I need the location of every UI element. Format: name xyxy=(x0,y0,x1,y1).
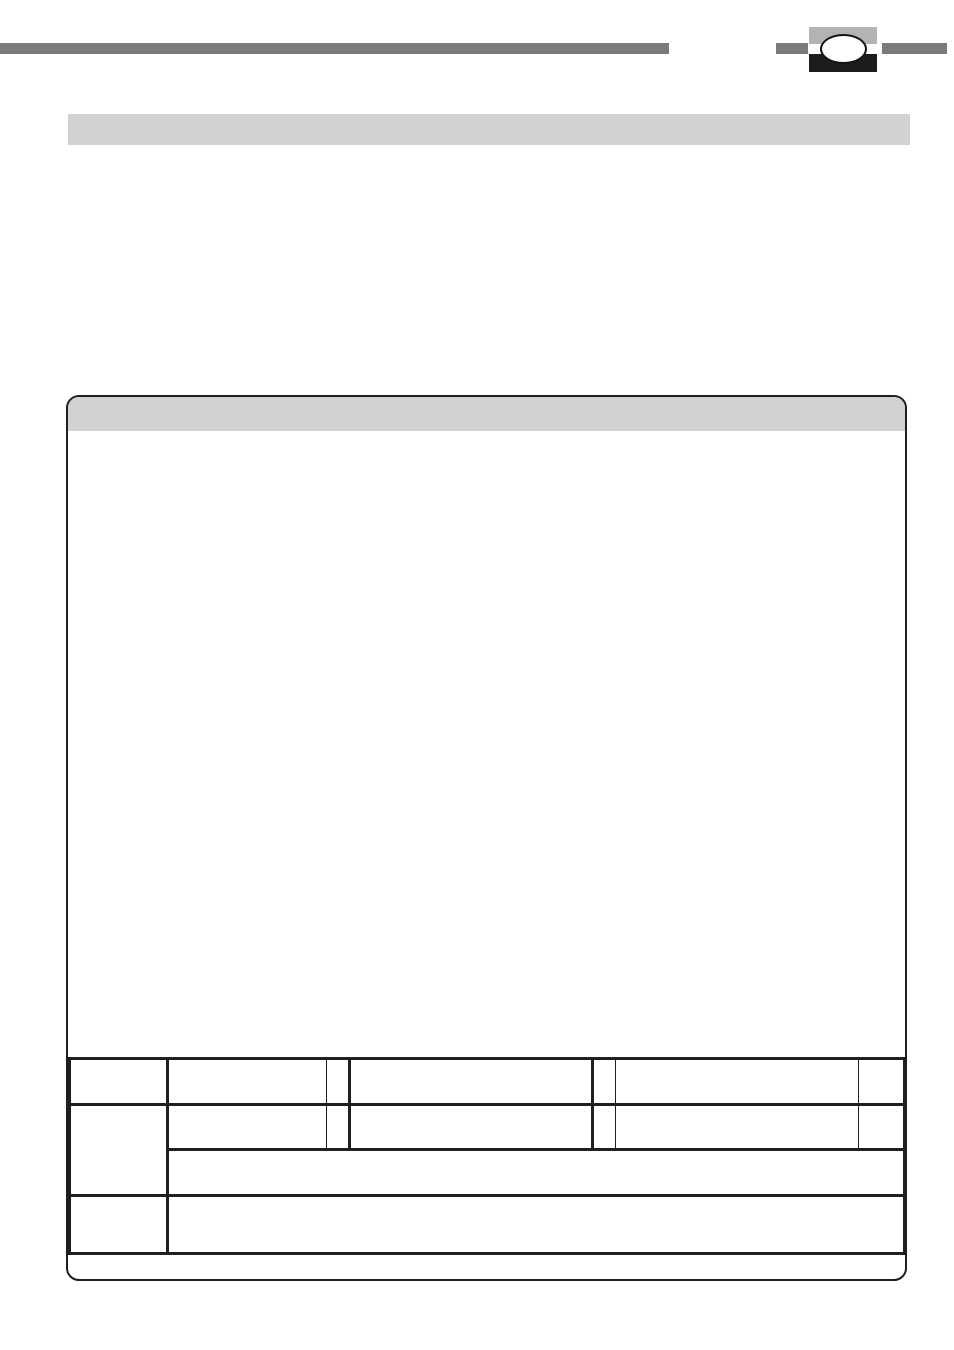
form-cell-rowspan xyxy=(70,1105,168,1196)
blank-form-table xyxy=(68,1057,906,1255)
form-cell xyxy=(593,1059,616,1105)
form-cell-wide xyxy=(168,1196,905,1254)
top-rule-right-segment xyxy=(882,43,947,54)
form-cell xyxy=(168,1059,327,1105)
form-cell xyxy=(70,1059,168,1105)
form-cell xyxy=(350,1105,593,1150)
top-rule-middle-segment xyxy=(776,43,808,54)
form-cell xyxy=(593,1105,616,1150)
section-title-band xyxy=(68,114,910,145)
form-cell xyxy=(350,1059,593,1105)
form-cell-wide xyxy=(168,1150,905,1196)
form-cell xyxy=(70,1196,168,1254)
form-cell xyxy=(616,1059,859,1105)
table-row-4 xyxy=(70,1196,905,1254)
table-row-2 xyxy=(70,1105,905,1150)
table-row-3 xyxy=(70,1150,905,1196)
form-cell xyxy=(168,1105,327,1150)
form-cell xyxy=(616,1105,859,1150)
form-cell xyxy=(327,1059,350,1105)
table-row-1 xyxy=(70,1059,905,1105)
form-cell xyxy=(327,1105,350,1150)
form-cell xyxy=(859,1105,905,1150)
form-panel xyxy=(66,395,907,1281)
form-cell xyxy=(859,1059,905,1105)
panel-header-band xyxy=(68,397,905,431)
top-rule-main xyxy=(0,43,669,54)
document-page xyxy=(0,0,954,1350)
oval-emblem-icon xyxy=(820,34,867,64)
